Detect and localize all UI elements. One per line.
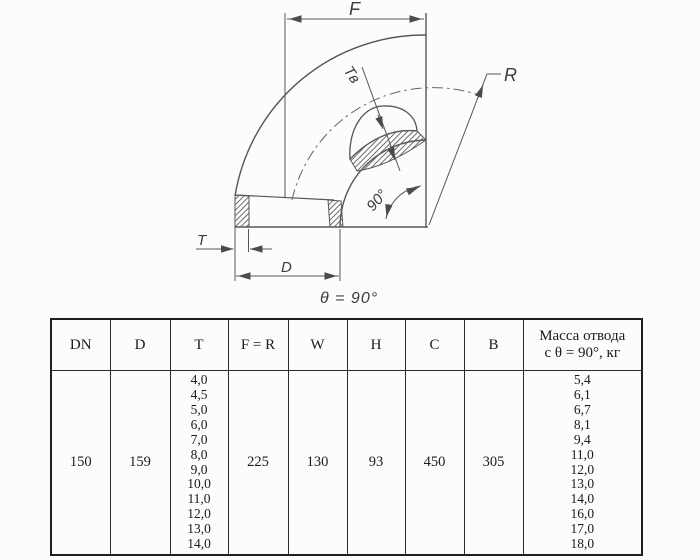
t-value: 9,0 xyxy=(171,463,228,478)
t-label: T xyxy=(197,232,208,249)
cell-t-list: 4,0 4,5 5,0 6,0 7,0 8,0 9,0 10,0 11,0 12… xyxy=(170,371,228,556)
wall-hatch-left xyxy=(235,195,249,227)
mass-value: 11,0 xyxy=(524,448,642,463)
theta-caption: θ = 90° xyxy=(320,290,378,307)
t-value: 14,0 xyxy=(171,537,228,552)
header-fr: F = R xyxy=(228,319,288,371)
t-value: 5,0 xyxy=(171,403,228,418)
cell-mass-list: 5,4 6,1 6,7 8,1 9,4 11,0 12,0 13,0 14,0 … xyxy=(523,371,642,556)
header-t: T xyxy=(170,319,228,371)
header-d: D xyxy=(110,319,170,371)
angle-label: 90° xyxy=(363,186,391,214)
mass-value: 12,0 xyxy=(524,463,642,478)
t-value: 4,5 xyxy=(171,388,228,403)
f-label: F xyxy=(349,0,361,19)
mass-value: 9,4 xyxy=(524,433,642,448)
t-value: 7,0 xyxy=(171,433,228,448)
mass-value: 6,7 xyxy=(524,403,642,418)
header-dn: DN xyxy=(51,319,110,371)
r-label: R xyxy=(504,65,517,85)
t-value: 11,0 xyxy=(171,492,228,507)
mass-value: 16,0 xyxy=(524,507,642,522)
mass-value: 14,0 xyxy=(524,492,642,507)
mass-value: 18,0 xyxy=(524,537,642,552)
t-value: 8,0 xyxy=(171,448,228,463)
header-b: B xyxy=(464,319,523,371)
header-mass-line1: Масса отвода xyxy=(524,328,642,345)
cell-fr: 225 xyxy=(228,371,288,556)
tb-label: Tв xyxy=(340,63,364,87)
cell-c: 450 xyxy=(405,371,464,556)
t-value: 6,0 xyxy=(171,418,228,433)
d-label: D xyxy=(281,259,292,276)
cell-h: 93 xyxy=(347,371,405,556)
cell-b: 305 xyxy=(464,371,523,556)
mass-value: 5,4 xyxy=(524,373,642,388)
table-header-row: DN D T F = R W H C B Масса отвода с θ = … xyxy=(51,319,642,371)
t-value: 4,0 xyxy=(171,373,228,388)
table-data-row: 150 159 4,0 4,5 5,0 6,0 7,0 8,0 9,0 10,0… xyxy=(51,371,642,556)
header-h: H xyxy=(347,319,405,371)
mass-value: 17,0 xyxy=(524,522,642,537)
elbow-drawing-svg: F Tв R 90° T xyxy=(0,0,700,312)
t-value: 10,0 xyxy=(171,477,228,492)
elbow-drawing: F Tв R 90° T xyxy=(0,0,700,312)
t-dimension xyxy=(196,227,272,281)
cell-dn: 150 xyxy=(51,371,110,556)
t-value: 12,0 xyxy=(171,507,228,522)
cell-w: 130 xyxy=(288,371,347,556)
angle-dimension xyxy=(386,186,421,219)
angle-arc xyxy=(386,186,421,219)
t-value: 13,0 xyxy=(171,522,228,537)
mass-value: 8,1 xyxy=(524,418,642,433)
header-c: C xyxy=(405,319,464,371)
mass-value: 13,0 xyxy=(524,477,642,492)
cell-d: 159 xyxy=(110,371,170,556)
mass-value: 6,1 xyxy=(524,388,642,403)
header-mass: Масса отвода с θ = 90°, кг xyxy=(523,319,642,371)
wall-hatch-right xyxy=(328,200,343,227)
r-dimension xyxy=(429,74,501,225)
r-leader-line xyxy=(429,74,501,225)
spec-table: DN D T F = R W H C B Масса отвода с θ = … xyxy=(50,318,643,556)
header-w: W xyxy=(288,319,347,371)
header-mass-line2: с θ = 90°, кг xyxy=(524,345,642,362)
